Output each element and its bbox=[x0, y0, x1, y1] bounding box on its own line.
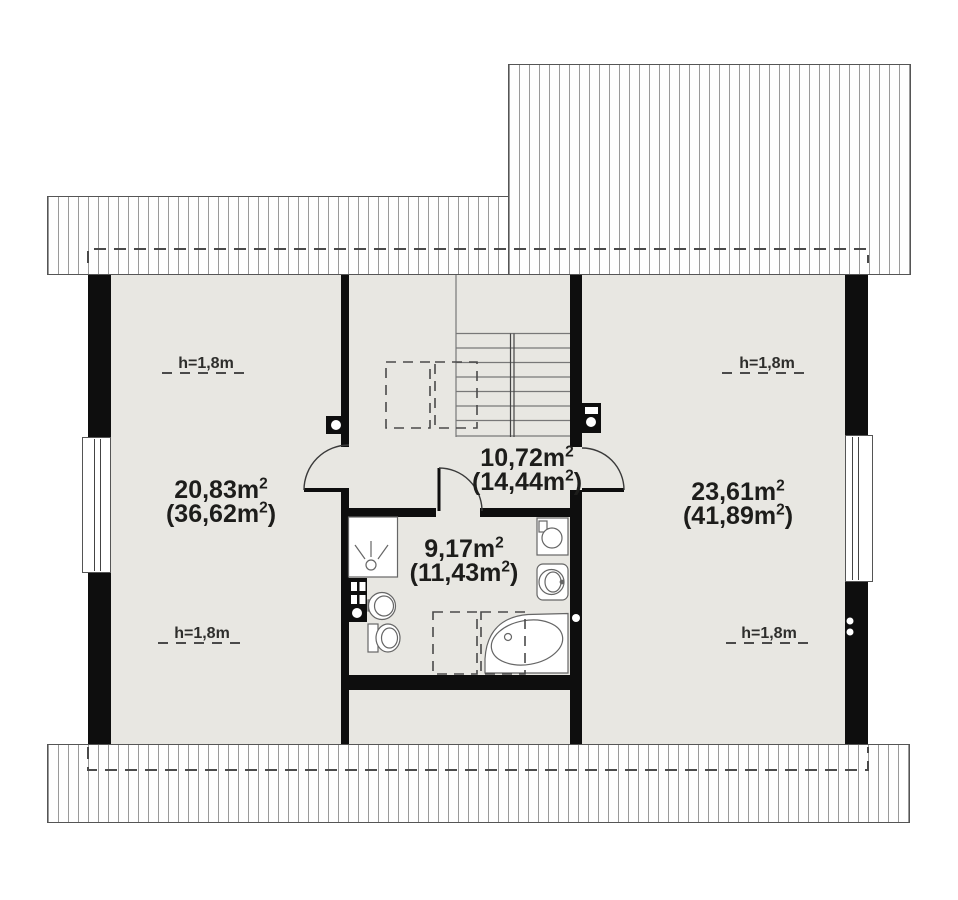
floor-plan-canvas: 20,83m2 (36,62m2) 10,72m2 (14,44m2) 9,17… bbox=[0, 0, 958, 900]
window-left bbox=[82, 437, 111, 573]
wall-interior-right-upper bbox=[570, 275, 582, 447]
wall-interior-right-lower bbox=[570, 490, 582, 744]
wall-bathroom-bottom bbox=[341, 675, 582, 690]
bathroom-area: 9,17m2 bbox=[410, 537, 519, 561]
room-left-area: 20,83m2 bbox=[166, 478, 276, 502]
height-label-right-bottom: h=1,8m bbox=[741, 625, 797, 643]
wall-exterior-left-lower bbox=[88, 573, 111, 744]
height-label-left-bottom: h=1,8m bbox=[174, 625, 230, 643]
wall-hall-bottom-left bbox=[341, 508, 436, 517]
window-left-glazing bbox=[94, 439, 101, 571]
roof-overhang-top-left bbox=[47, 196, 508, 275]
window-right bbox=[845, 435, 873, 582]
room-right-floor-area: (41,89m2) bbox=[683, 504, 793, 528]
bathroom-floor-area: (11,43m2) bbox=[410, 561, 519, 585]
wall-exterior-right-lower bbox=[845, 582, 868, 744]
bathroom-area-label: 9,17m2 (11,43m2) bbox=[410, 537, 519, 585]
room-left-area-label: 20,83m2 (36,62m2) bbox=[166, 478, 276, 526]
wall-exterior-left-upper bbox=[88, 275, 111, 437]
height-label-left-top: h=1,8m bbox=[178, 355, 234, 373]
room-right-area: 23,61m2 bbox=[683, 480, 793, 504]
roof-block-top bbox=[508, 64, 911, 275]
wall-hall-bottom-right bbox=[480, 508, 570, 517]
chimney-vent-slot bbox=[585, 407, 598, 414]
room-right-area-label: 23,61m2 (41,89m2) bbox=[683, 480, 793, 528]
wall-interior-left-lower bbox=[341, 490, 349, 744]
chimney-block bbox=[582, 403, 601, 433]
door-post-block bbox=[326, 416, 346, 434]
window-right-glazing bbox=[852, 437, 859, 580]
roof-overhang-bottom bbox=[47, 744, 910, 823]
wall-exterior-right-upper bbox=[845, 275, 868, 435]
hall-area-label: 10,72m2 (14,44m2) bbox=[472, 446, 582, 494]
height-label-right-top: h=1,8m bbox=[739, 355, 795, 373]
room-left-floor-area: (36,62m2) bbox=[166, 502, 276, 526]
hall-floor-area: (14,44m2) bbox=[472, 470, 582, 494]
hall-area: 10,72m2 bbox=[472, 446, 582, 470]
